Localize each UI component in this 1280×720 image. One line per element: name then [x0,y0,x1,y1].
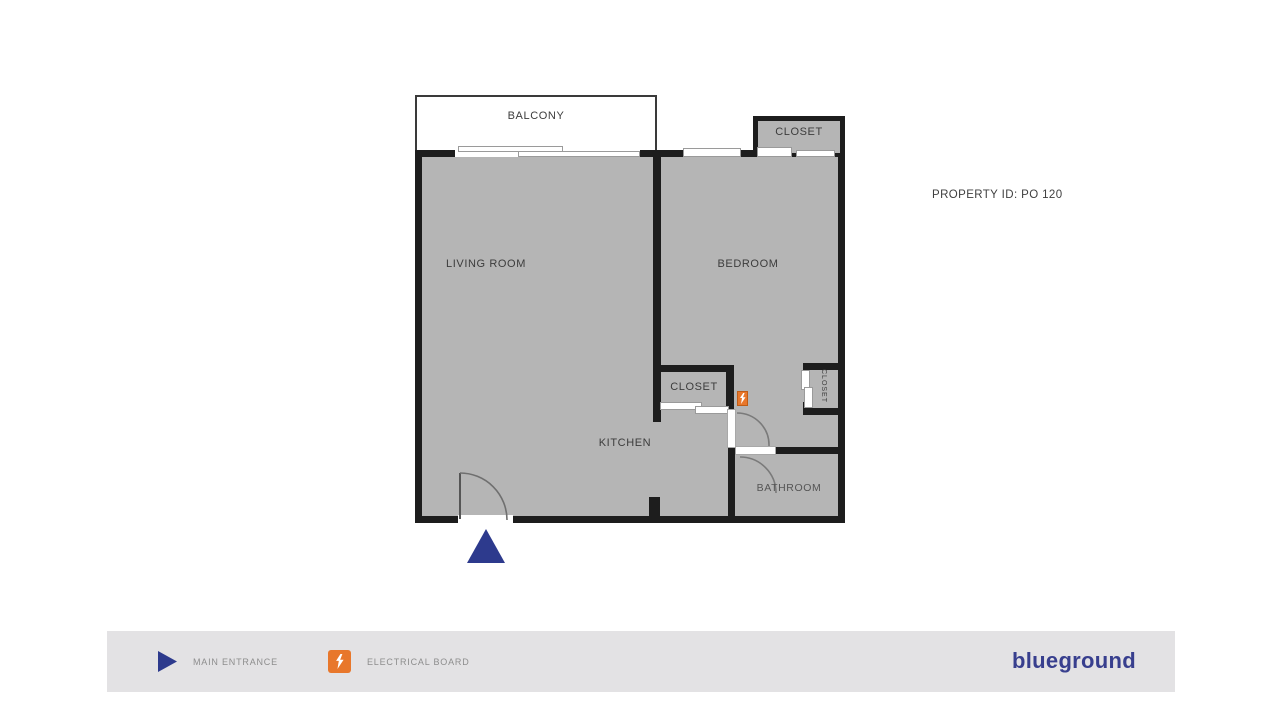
main-entrance-triangle-icon [467,529,505,563]
electrical-board-legend-label: ELECTRICAL BOARD [367,657,470,667]
wall-hall-closet-top [653,365,733,372]
main-entrance-legend-label: MAIN ENTRANCE [193,657,278,667]
property-id-text: PROPERTY ID: PO 120 [932,189,1063,201]
legend-bar: MAIN ENTRANCE ELECTRICAL BOARD bluegroun… [107,631,1175,692]
lightning-bolt-icon [739,393,746,404]
closet-top-sliding-panel-2 [796,150,835,157]
blueground-logo: blueground [1012,648,1136,674]
kitchen-hall-door-leaf [727,409,736,448]
side-closet-label: CLOSET [820,369,827,411]
bathroom-label: BATHROOM [739,482,839,494]
side-closet-sliding-panel-2 [804,387,813,408]
apartment-outline [415,150,845,523]
closet-top-label: CLOSET [758,126,840,138]
living-room-window-panel-2 [518,151,640,157]
electrical-board-icon [328,650,351,673]
kitchen-label: KITCHEN [575,437,675,449]
wall-bathroom-top [773,447,845,454]
main-entrance-opening [458,515,513,524]
bathroom-door-leaf [735,446,776,455]
living-room-label: LIVING ROOM [426,258,546,270]
wall-kitchen-stub [649,497,660,523]
floorplan-page: BALCONY CLOSET LIVING ROOM [0,0,1280,720]
balcony-label: BALCONY [417,110,655,122]
wall-bathroom-left [728,447,735,523]
lightning-bolt-icon [334,654,345,669]
hall-closet-label: CLOSET [654,381,734,393]
bedroom-window-panel [683,148,741,157]
electrical-board-marker [737,391,748,406]
bedroom-label: BEDROOM [698,258,798,270]
closet-top-sliding-panel-1 [757,147,792,157]
main-entrance-triangle-icon [158,651,177,672]
balcony-room: BALCONY [415,95,657,153]
hall-closet-sliding-panel-2 [695,406,729,414]
